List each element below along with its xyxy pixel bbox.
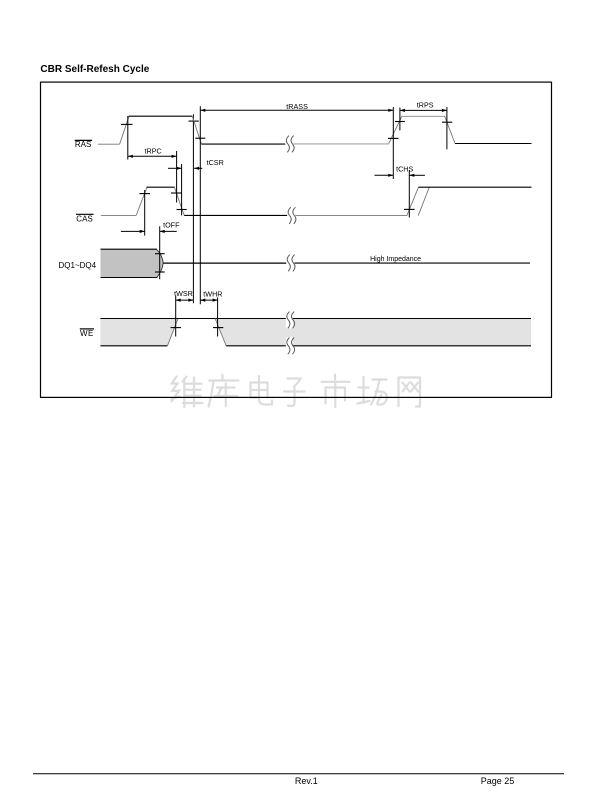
- svg-text:tWHR: tWHR: [203, 289, 222, 298]
- svg-text:Page 25: Page 25: [481, 776, 515, 786]
- svg-text:tCHS: tCHS: [396, 165, 413, 174]
- svg-text:tCSR: tCSR: [207, 158, 224, 167]
- svg-text:tRPC: tRPC: [145, 147, 162, 156]
- svg-text:RAS: RAS: [75, 140, 91, 149]
- svg-text:CAS: CAS: [76, 215, 92, 224]
- svg-text:High Impedance: High Impedance: [370, 256, 421, 263]
- svg-text:tRASS: tRASS: [286, 102, 308, 111]
- svg-text:CBR Self-Refesh Cycle: CBR Self-Refesh Cycle: [40, 64, 149, 75]
- svg-text:tWSR: tWSR: [174, 289, 193, 298]
- svg-text:tOFF: tOFF: [163, 221, 180, 230]
- svg-text:DQ1~DQ4: DQ1~DQ4: [59, 261, 97, 270]
- svg-text:Rev.1: Rev.1: [295, 776, 318, 786]
- svg-text:WE: WE: [80, 329, 94, 338]
- svg-text:tRPS: tRPS: [417, 100, 434, 109]
